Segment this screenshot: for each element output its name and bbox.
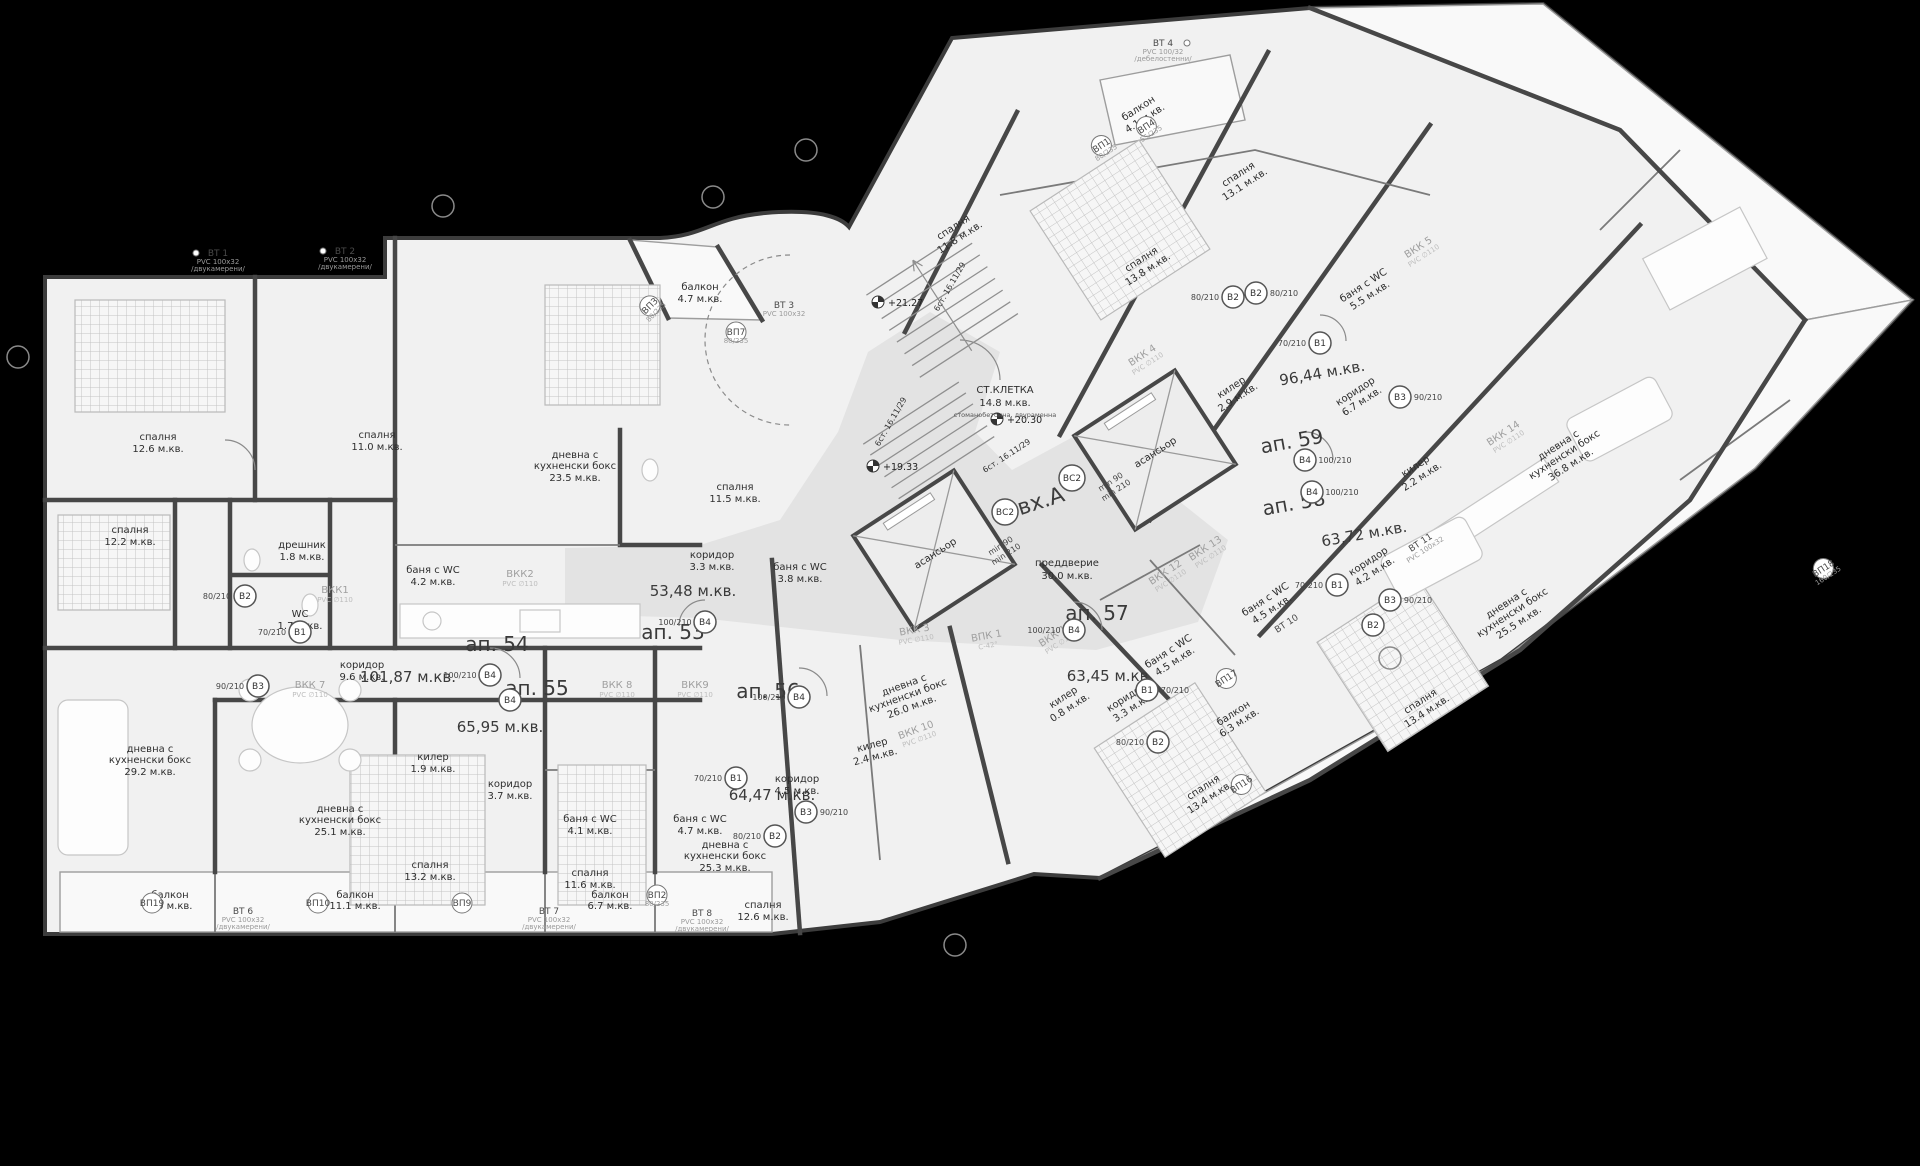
- svg-text:В4: В4: [793, 693, 805, 703]
- svg-text:70/210: 70/210: [1161, 686, 1189, 695]
- svg-text:коридор: коридор: [775, 774, 819, 785]
- room-label: балкон11.1 м.кв.: [329, 890, 380, 912]
- svg-text:12.6 м.кв.: 12.6 м.кв.: [132, 444, 183, 455]
- door-marker: В4: [499, 689, 521, 711]
- svg-text:В4: В4: [484, 671, 496, 681]
- room-label: спалня11.0 м.кв.: [351, 430, 402, 453]
- svg-text:PVC 100х32: PVC 100х32: [763, 310, 806, 318]
- svg-text:70/210: 70/210: [1278, 339, 1306, 348]
- svg-text:4.7 м.кв.: 4.7 м.кв.: [678, 294, 723, 305]
- room-label: балкон4.7 м.кв.: [678, 282, 723, 305]
- svg-text:СТ.КЛЕТКА: СТ.КЛЕТКА: [976, 385, 1033, 396]
- svg-text:100/210: 100/210: [752, 693, 785, 702]
- room-label: коридор4.5 м.кв.: [775, 774, 820, 797]
- svg-text:дневна с: дневна с: [317, 804, 364, 815]
- door-tag: ВП9: [452, 893, 472, 913]
- svg-text:100/210: 100/210: [658, 618, 691, 627]
- svg-text:преддверие: преддверие: [1035, 558, 1099, 569]
- room-label: спалня12.2 м.кв.: [104, 525, 155, 548]
- room-label: баня с WC3.8 м.кв.: [773, 562, 827, 585]
- svg-text:кухненски бокс: кухненски бокс: [299, 815, 381, 826]
- svg-text:В4: В4: [504, 696, 516, 706]
- svg-text:11.0 м.кв.: 11.0 м.кв.: [351, 442, 402, 453]
- svg-text:4.7 м.кв.: 4.7 м.кв.: [678, 826, 723, 837]
- svg-text:баня с WC: баня с WC: [406, 565, 460, 576]
- svg-text:В1: В1: [1331, 581, 1343, 591]
- svg-text:13.2 м.кв.: 13.2 м.кв.: [404, 872, 455, 883]
- svg-text:В2: В2: [239, 592, 251, 602]
- svg-text:дневна с: дневна с: [127, 744, 174, 755]
- svg-text:1.8 м.кв.: 1.8 м.кв.: [280, 552, 325, 563]
- svg-text:ВП19: ВП19: [140, 899, 165, 909]
- svg-text:В3: В3: [1394, 393, 1406, 403]
- svg-text:90/210: 90/210: [216, 682, 244, 691]
- room-label: коридор3.3 м.кв.: [690, 550, 735, 573]
- svg-text:В4: В4: [699, 618, 711, 628]
- svg-text:ВКК1: ВКК1: [321, 585, 348, 596]
- svg-text:4.1 м.кв.: 4.1 м.кв.: [568, 826, 613, 837]
- room-label: спалня11.5 м.кв.: [709, 482, 760, 505]
- svg-text:спалня: спалня: [744, 900, 781, 911]
- svg-text:3.8 м.кв.: 3.8 м.кв.: [778, 574, 823, 585]
- svg-text:кухненски бокс: кухненски бокс: [534, 461, 616, 472]
- svg-text:100/210: 100/210: [1325, 488, 1358, 497]
- shaft-label: ВКК 7PVC ∅110: [292, 680, 328, 699]
- svg-text:стоманобетонна, двураменна: стоманобетонна, двураменна: [954, 411, 1057, 419]
- svg-text:/двукамерени/: /двукамерени/: [522, 923, 576, 931]
- svg-text:ВКК 7: ВКК 7: [295, 680, 326, 691]
- shaft-label: ВКК9PVC ∅110: [677, 680, 713, 699]
- floor-plan-canvas: +21.27 +20.30 +19.33 вх.А СТ.КЛЕТКА 14.8…: [0, 0, 1920, 1166]
- svg-text:дневна с: дневна с: [702, 840, 749, 851]
- svg-text:80/210: 80/210: [733, 832, 761, 841]
- svg-text:кухненски бокс: кухненски бокс: [684, 851, 766, 862]
- svg-text:11.1 м.кв.: 11.1 м.кв.: [329, 901, 380, 912]
- svg-text:70/210: 70/210: [694, 774, 722, 783]
- svg-text:В2: В2: [1250, 289, 1262, 299]
- svg-text:ВП10: ВП10: [306, 899, 331, 909]
- elevation-value: +19.33: [883, 462, 918, 473]
- svg-text:дрешник: дрешник: [278, 540, 326, 551]
- svg-text:PVC ∅110: PVC ∅110: [599, 691, 635, 699]
- svg-text:спалня: спалня: [411, 860, 448, 871]
- svg-text:В4: В4: [1306, 488, 1318, 498]
- svg-text:В1: В1: [730, 774, 742, 784]
- svg-text:баня с WC: баня с WC: [773, 562, 827, 573]
- svg-text:80/210: 80/210: [1270, 289, 1298, 298]
- svg-text:килер: килер: [417, 752, 448, 763]
- svg-text:коридор: коридор: [488, 779, 532, 790]
- room-label: баня с WC4.2 м.кв.: [406, 565, 460, 588]
- svg-text:80/210: 80/210: [203, 592, 231, 601]
- svg-text:12.6 м.кв.: 12.6 м.кв.: [737, 912, 788, 923]
- svg-text:25.3 м.кв.: 25.3 м.кв.: [699, 863, 750, 874]
- room-label: спалня12.6 м.кв.: [737, 900, 788, 923]
- svg-text:балкон: балкон: [681, 282, 718, 293]
- svg-text:ВКК2: ВКК2: [506, 569, 533, 580]
- svg-text:ВКК9: ВКК9: [681, 680, 708, 691]
- room-label: спалня13.2 м.кв.: [404, 860, 455, 883]
- svg-text:спалня: спалня: [111, 525, 148, 536]
- svg-text:100/210: 100/210: [1318, 456, 1351, 465]
- svg-text:80/235: 80/235: [645, 900, 670, 908]
- svg-text:ВС2: ВС2: [1063, 474, 1081, 484]
- svg-text:ВКК 8: ВКК 8: [602, 680, 633, 691]
- room-label: коридор9.6 м.кв.: [340, 660, 385, 683]
- svg-text:балкон: балкон: [591, 890, 628, 901]
- floor-plan-page: +21.27 +20.30 +19.33 вх.А СТ.КЛЕТКА 14.8…: [0, 0, 1920, 1166]
- svg-text:PVC ∅110: PVC ∅110: [502, 580, 538, 588]
- svg-text:В1: В1: [1314, 339, 1326, 349]
- svg-text:14.8 м.кв.: 14.8 м.кв.: [979, 398, 1030, 409]
- svg-text:70/210: 70/210: [258, 628, 286, 637]
- svg-text:В3: В3: [800, 808, 812, 818]
- svg-text:80/210: 80/210: [1116, 738, 1144, 747]
- svg-text:В3: В3: [252, 682, 264, 692]
- shaft-label: ВКК 8PVC ∅110: [599, 680, 635, 699]
- svg-text:11.5 м.кв.: 11.5 м.кв.: [709, 494, 760, 505]
- svg-text:баня с WC: баня с WC: [673, 814, 727, 825]
- room-label: дрешник1.8 м.кв.: [278, 540, 326, 563]
- svg-text:70/210: 70/210: [1295, 581, 1323, 590]
- room-label: баня с WC4.7 м.кв.: [673, 814, 727, 837]
- svg-text:спалня: спалня: [571, 868, 608, 879]
- shaft-label: ВКК2PVC ∅110: [502, 569, 538, 588]
- svg-text:29.2 м.кв.: 29.2 м.кв.: [124, 767, 175, 778]
- svg-text:В3: В3: [1384, 596, 1396, 606]
- svg-text:/двукамерени/: /двукамерени/: [318, 263, 372, 271]
- svg-text:В1: В1: [1141, 686, 1153, 696]
- svg-text:3.7 м.кв.: 3.7 м.кв.: [488, 791, 533, 802]
- svg-text:9.6 м.кв.: 9.6 м.кв.: [340, 672, 385, 683]
- door-marker: ВС2: [1059, 465, 1085, 491]
- svg-text:PVC ∅110: PVC ∅110: [677, 691, 713, 699]
- svg-text:В2: В2: [769, 832, 781, 842]
- apartment-id: ап. 54: [465, 632, 529, 656]
- svg-text:ВС2: ВС2: [996, 508, 1014, 518]
- svg-text:/двукамерени/: /двукамерени/: [191, 265, 245, 273]
- svg-text:В2: В2: [1227, 293, 1239, 303]
- room-label: коридор3.7 м.кв.: [488, 779, 533, 802]
- room-label: балкон6.7 м.кв.: [588, 890, 633, 912]
- svg-text:ВП9: ВП9: [453, 899, 472, 909]
- apartment-area: 65,95 м.кв.: [457, 718, 543, 736]
- svg-text:спалня: спалня: [358, 430, 395, 441]
- svg-text:балкон: балкон: [336, 890, 373, 901]
- svg-text:/двукамерени/: /двукамерени/: [216, 923, 270, 931]
- room-label: спалня12.6 м.кв.: [132, 432, 183, 455]
- apartment-area: 53,48 м.кв.: [650, 582, 736, 600]
- svg-text:100/210: 100/210: [1027, 626, 1060, 635]
- svg-text:3.3 м.кв.: 3.3 м.кв.: [690, 562, 735, 573]
- svg-text:12.2 м.кв.: 12.2 м.кв.: [104, 537, 155, 548]
- svg-text:100/210: 100/210: [443, 671, 476, 680]
- svg-text:4.2 м.кв.: 4.2 м.кв.: [411, 577, 456, 588]
- svg-text:спалня: спалня: [716, 482, 753, 493]
- svg-text:80/210: 80/210: [1191, 293, 1219, 302]
- svg-text:коридор: коридор: [690, 550, 734, 561]
- svg-text:/дебелостенни/: /дебелостенни/: [1134, 55, 1192, 63]
- svg-text:спалня: спалня: [139, 432, 176, 443]
- svg-text:В2: В2: [1152, 738, 1164, 748]
- svg-text:дневна с: дневна с: [552, 450, 599, 461]
- svg-text:В1: В1: [294, 628, 306, 638]
- svg-text:В2: В2: [1367, 621, 1379, 631]
- svg-text:В4: В4: [1299, 456, 1311, 466]
- svg-text:PVC ∅110: PVC ∅110: [292, 691, 328, 699]
- room-label: спалня11.6 м.кв.: [564, 868, 615, 891]
- shaft-label: ВКК1PVC ∅110: [317, 585, 353, 604]
- svg-text:23.5 м.кв.: 23.5 м.кв.: [549, 473, 600, 484]
- svg-text:90/210: 90/210: [1404, 596, 1432, 605]
- svg-text:1.9 м.кв.: 1.9 м.кв.: [411, 764, 456, 775]
- svg-text:WC: WC: [292, 609, 309, 620]
- svg-text:6.7 м.кв.: 6.7 м.кв.: [588, 901, 633, 912]
- svg-text:/двукамерени/: /двукамерени/: [675, 925, 729, 933]
- room-label: баня с WC4.1 м.кв.: [563, 814, 617, 837]
- svg-text:коридор: коридор: [340, 660, 384, 671]
- svg-text:30.0 м.кв.: 30.0 м.кв.: [1041, 571, 1092, 582]
- svg-text:90/210: 90/210: [820, 808, 848, 817]
- svg-text:25.1 м.кв.: 25.1 м.кв.: [314, 827, 365, 838]
- svg-text:PVC ∅110: PVC ∅110: [317, 596, 353, 604]
- svg-text:90/210: 90/210: [1414, 393, 1442, 402]
- svg-text:В4: В4: [1068, 626, 1080, 636]
- svg-text:4.5 м.кв.: 4.5 м.кв.: [775, 786, 820, 797]
- svg-text:кухненски бокс: кухненски бокс: [109, 755, 191, 766]
- svg-text:баня с WC: баня с WC: [563, 814, 617, 825]
- svg-text:80/235: 80/235: [724, 337, 749, 345]
- elevation-value: +21.27: [888, 298, 923, 309]
- door-marker: В2: [1362, 614, 1384, 636]
- door-marker: ВС2: [992, 499, 1018, 525]
